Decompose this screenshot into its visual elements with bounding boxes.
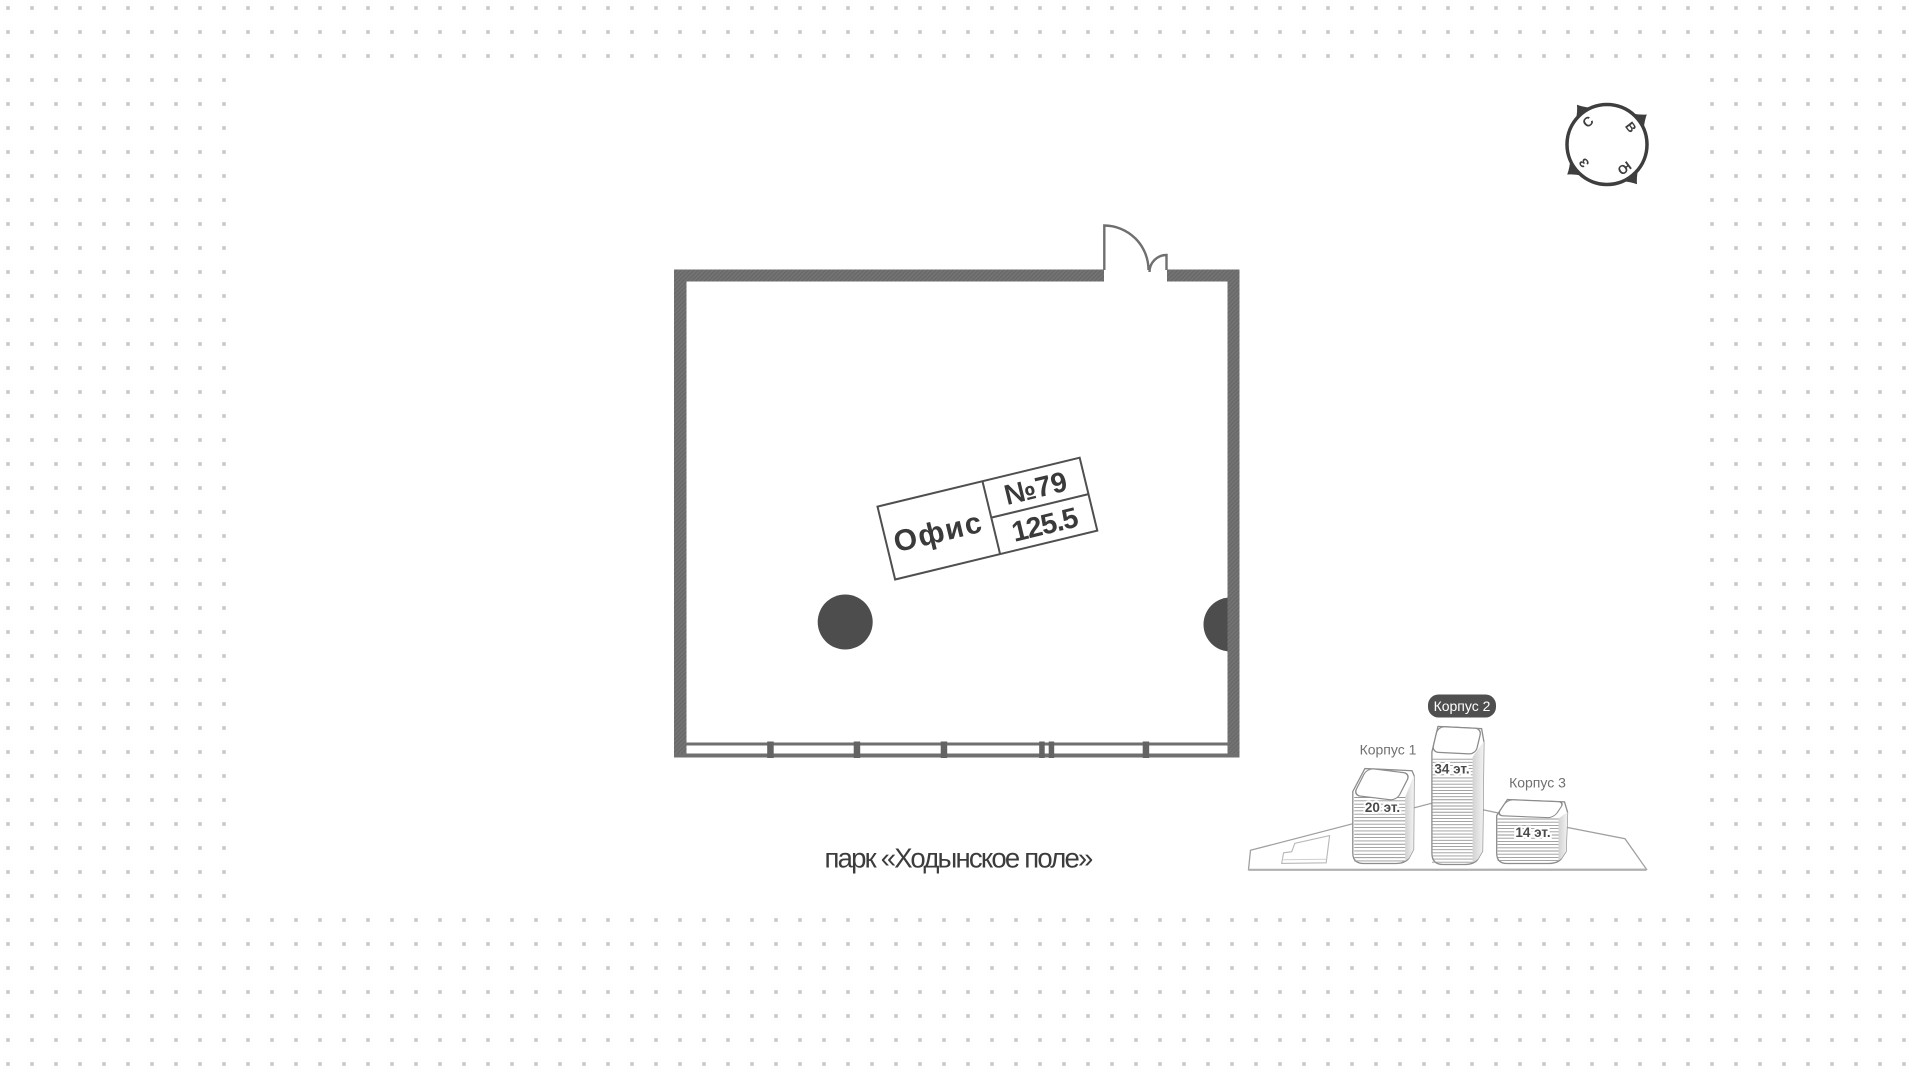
svg-text:Корпус 2: Корпус 2 bbox=[1434, 698, 1491, 714]
svg-text:парк «Ходынское поле»: парк «Ходынское поле» bbox=[825, 843, 1093, 874]
svg-text:14 эт.: 14 эт. bbox=[1515, 825, 1550, 840]
svg-text:20 эт.: 20 эт. bbox=[1365, 800, 1400, 815]
svg-text:Корпус 3: Корпус 3 bbox=[1509, 775, 1566, 791]
svg-text:Корпус 1: Корпус 1 bbox=[1360, 742, 1417, 758]
svg-text:34 эт.: 34 эт. bbox=[1434, 762, 1469, 777]
